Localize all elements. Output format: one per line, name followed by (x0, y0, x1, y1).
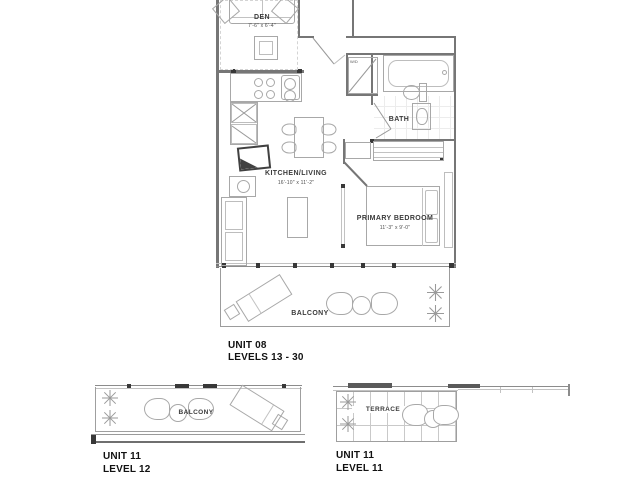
washer-dryer-diagonal (349, 59, 376, 92)
entry-door-swing (334, 55, 345, 64)
bath-door-swing (374, 103, 391, 129)
entry-door-swing (313, 38, 334, 64)
bedroom-angled-wall (344, 162, 367, 186)
floorplan-page: DEN 7'-6" x 6'-4" KITCHEN/LIVING 1 (0, 0, 640, 480)
plan-detail-lines (0, 0, 640, 480)
dishwasher-diagonal (232, 126, 256, 143)
bath-door-swing (376, 129, 391, 138)
